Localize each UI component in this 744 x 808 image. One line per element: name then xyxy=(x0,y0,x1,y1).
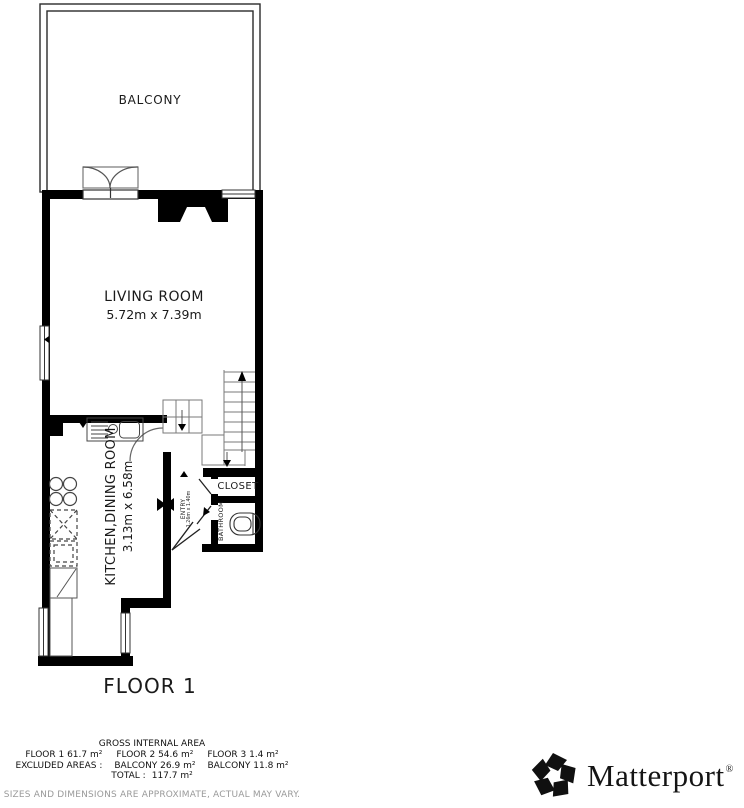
total-label: TOTAL : xyxy=(111,771,145,782)
matterport-wordmark: Matterport® xyxy=(587,758,734,794)
matterport-pinwheel-icon xyxy=(528,752,580,800)
walls xyxy=(38,190,263,666)
balcony-label: BALCONY xyxy=(40,93,260,107)
appliance-dashed-icons xyxy=(50,510,77,566)
kitchen-dining-dimensions: 3.13m x 6.58m xyxy=(121,461,135,553)
excluded-balcony1: BALCONY 26.9 m² xyxy=(114,761,195,772)
stove-icon xyxy=(50,478,77,506)
excluded-balcony2: BALCONY 11.8 m² xyxy=(207,761,288,772)
window-top-icon xyxy=(222,190,255,198)
area-summary-title: GROSS INTERNAL AREA xyxy=(0,739,304,750)
counter-icons xyxy=(50,568,77,656)
bathroom-name: BATHROOM xyxy=(217,501,225,541)
area-summary-excluded: EXCLUDED AREAS :BALCONY 26.9 m²BALCONY 1… xyxy=(0,761,304,772)
area-summary-total: TOTAL :117.7 m² xyxy=(0,771,304,782)
floorplan-page: { "plan": { "floor_label": "FLOOR 1", "r… xyxy=(0,0,744,808)
area-summary-floors: FLOOR 1 61.7 m²FLOOR 2 54.6 m²FLOOR 3 1.… xyxy=(0,750,304,761)
floor-label: FLOOR 1 xyxy=(40,674,260,698)
staircase xyxy=(163,370,255,466)
closet-label: CLOSET xyxy=(217,481,259,492)
bathroom-label: BATHROOM xyxy=(216,501,225,541)
total-value: 117.7 m² xyxy=(152,771,193,781)
floor3-area: FLOOR 3 1.4 m² xyxy=(207,750,278,761)
window-left-bottom-icon xyxy=(39,608,48,656)
window-left-living-icon xyxy=(40,326,49,380)
excluded-label: EXCLUDED AREAS : xyxy=(15,761,102,772)
disclaimer-text: SIZES AND DIMENSIONS ARE APPROXIMATE, AC… xyxy=(0,790,304,800)
kitchen-dining-label: KITCHEN,DINING ROOM 3.13m x 6.58m xyxy=(100,424,138,589)
french-door-icon xyxy=(83,167,138,199)
living-room-label: LIVING ROOM 5.72m x 7.39m xyxy=(50,289,258,322)
fireplace-icon xyxy=(158,192,228,222)
floor1-area: FLOOR 1 61.7 m² xyxy=(25,750,102,761)
window-narrow-right-icon xyxy=(121,613,130,653)
registered-mark: ® xyxy=(726,764,734,775)
entry-label: ENTRY 1.26m x 1.40m xyxy=(177,483,194,535)
closet-door-icon xyxy=(199,479,218,494)
entry-name: ENTRY xyxy=(180,499,187,519)
matterport-logo: Matterport® xyxy=(528,752,734,800)
floor2-area: FLOOR 2 54.6 m² xyxy=(116,750,193,761)
kitchen-dining-name: KITCHEN,DINING ROOM xyxy=(104,427,119,585)
stair-direction-arrows xyxy=(178,371,246,467)
living-room-name: LIVING ROOM xyxy=(50,289,258,305)
matterport-name: Matterport xyxy=(587,758,725,793)
living-room-dimensions: 5.72m x 7.39m xyxy=(50,307,258,322)
entry-dimensions: 1.26m x 1.40m xyxy=(187,491,192,528)
area-summary: GROSS INTERNAL AREA FLOOR 1 61.7 m²FLOOR… xyxy=(0,739,304,782)
